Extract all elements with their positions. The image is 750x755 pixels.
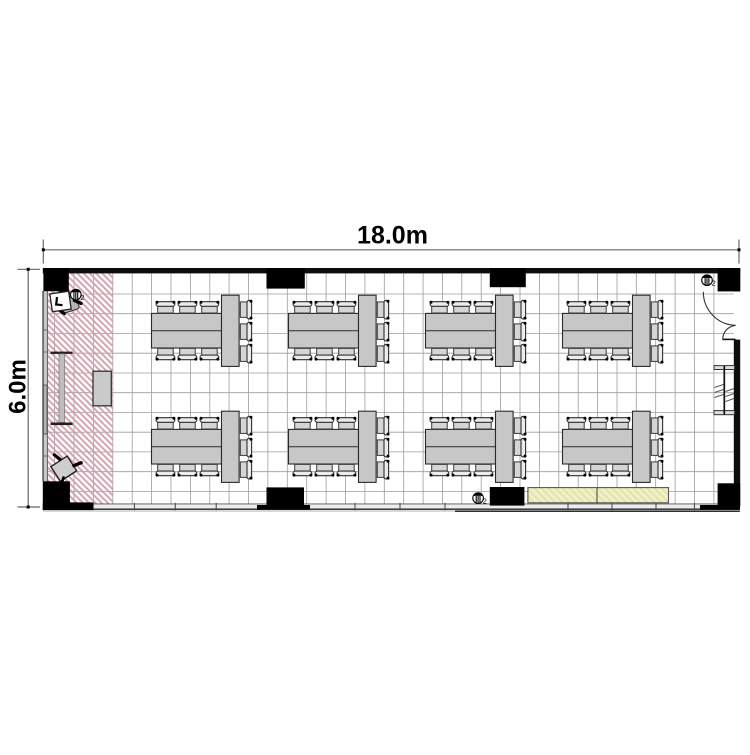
- svg-text:18.0m: 18.0m: [357, 222, 428, 250]
- svg-text:6.0m: 6.0m: [5, 359, 32, 414]
